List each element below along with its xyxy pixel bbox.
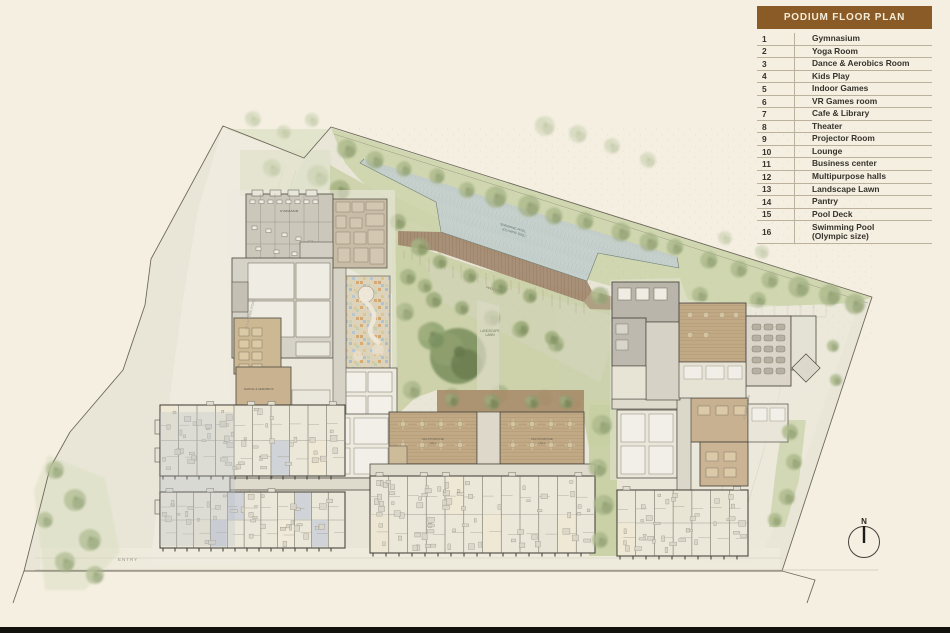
svg-text:ENTRY: ENTRY — [118, 557, 138, 562]
svg-text:GYMNASIUM: GYMNASIUM — [280, 209, 299, 213]
svg-text:LAWN: LAWN — [485, 333, 495, 337]
svg-text:DANCE & AEROBICS: DANCE & AEROBICS — [244, 387, 274, 391]
svg-text:N: N — [861, 517, 867, 526]
svg-text:HALL: HALL — [430, 441, 437, 445]
svg-text:HALL: HALL — [539, 441, 546, 445]
